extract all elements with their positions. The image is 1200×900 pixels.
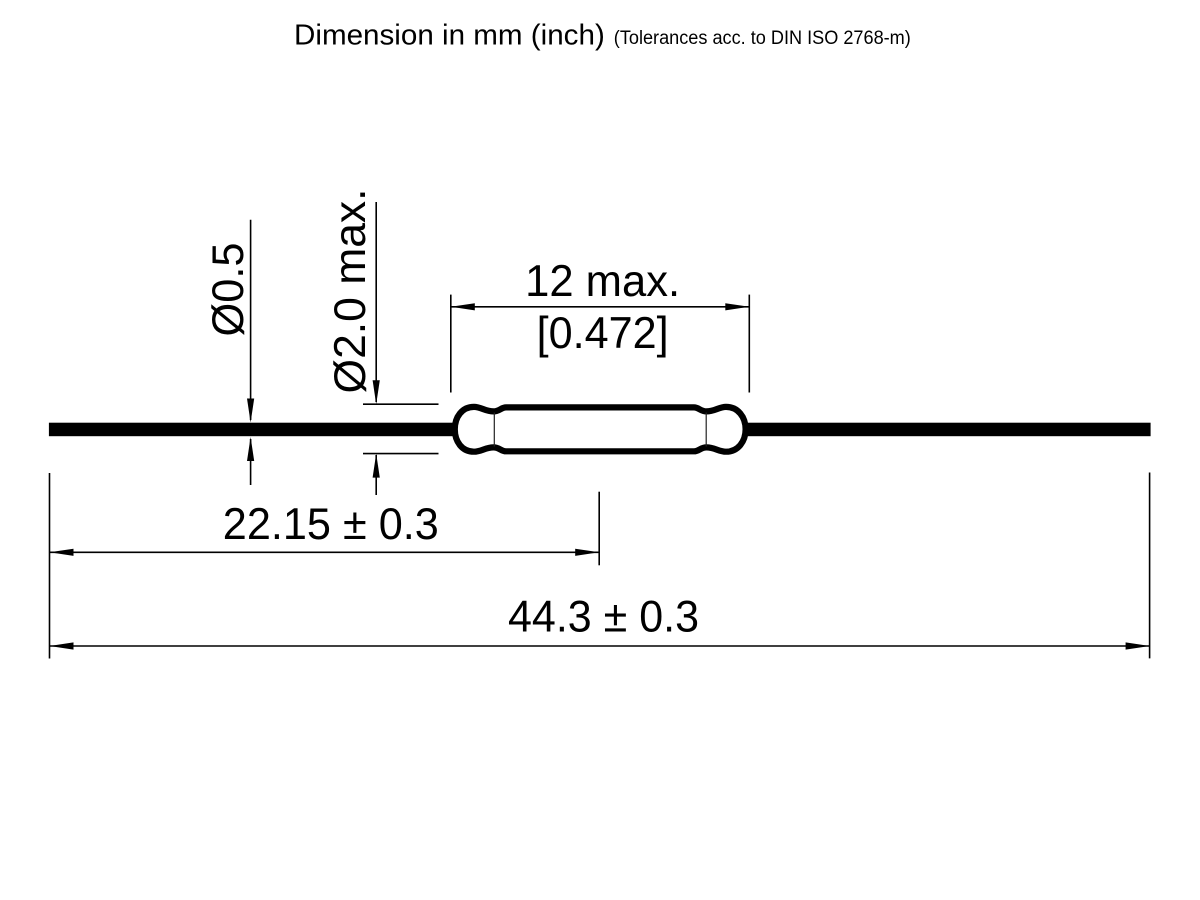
svg-text:12 max.: 12 max. <box>525 257 680 306</box>
svg-text:Ø2.0 max.: Ø2.0 max. <box>326 189 375 394</box>
svg-text:[0.472]: [0.472] <box>537 309 669 358</box>
svg-text:44.3 ± 0.3: 44.3 ± 0.3 <box>508 593 699 642</box>
svg-text:(Tolerances acc. to DIN ISO 27: (Tolerances acc. to DIN ISO 2768-m) <box>614 28 911 49</box>
svg-text:22.15 ± 0.3: 22.15 ± 0.3 <box>223 500 439 549</box>
svg-text:Ø0.5: Ø0.5 <box>204 242 253 336</box>
svg-text:Dimension in mm (inch): Dimension in mm (inch) <box>294 19 605 51</box>
